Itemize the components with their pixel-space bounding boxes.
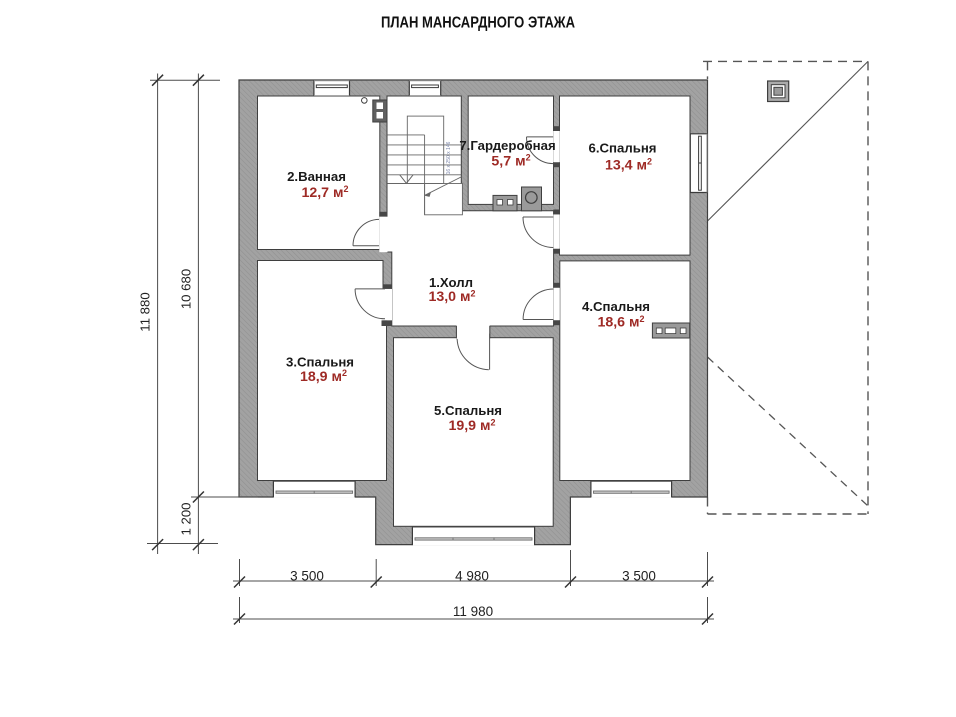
- svg-text:7.Гардеробная: 7.Гардеробная: [459, 138, 555, 153]
- svg-text:3 500: 3 500: [622, 569, 656, 584]
- svg-text:1 200: 1 200: [179, 502, 194, 535]
- svg-text:5.Спальня: 5.Спальня: [434, 403, 502, 418]
- svg-text:19,9 м2: 19,9 м2: [448, 417, 495, 434]
- svg-text:11 980: 11 980: [453, 604, 493, 619]
- svg-text:ПЛАН МАНСАРДНОГО ЭТАЖА: ПЛАН МАНСАРДНОГО ЭТАЖА: [381, 15, 575, 32]
- svg-text:5,7 м2: 5,7 м2: [491, 153, 530, 170]
- svg-text:4.Спальня: 4.Спальня: [582, 299, 650, 314]
- svg-text:18,6 м2: 18,6 м2: [597, 314, 644, 331]
- svg-text:6.Спальня: 6.Спальня: [589, 141, 657, 156]
- svg-text:3 500: 3 500: [290, 569, 324, 584]
- svg-text:1.Холл: 1.Холл: [429, 275, 473, 290]
- svg-text:12,7 м2: 12,7 м2: [301, 184, 348, 201]
- svg-text:4 980: 4 980: [455, 569, 489, 584]
- svg-text:16 x 250 x 146: 16 x 250 x 146: [446, 141, 452, 174]
- svg-text:18,9 м2: 18,9 м2: [300, 368, 347, 385]
- svg-text:13,0 м2: 13,0 м2: [428, 288, 475, 305]
- svg-text:11 880: 11 880: [138, 292, 153, 331]
- svg-text:10 680: 10 680: [179, 269, 194, 309]
- svg-text:13,4 м2: 13,4 м2: [605, 157, 652, 174]
- svg-text:2.Ванная: 2.Ванная: [287, 169, 346, 184]
